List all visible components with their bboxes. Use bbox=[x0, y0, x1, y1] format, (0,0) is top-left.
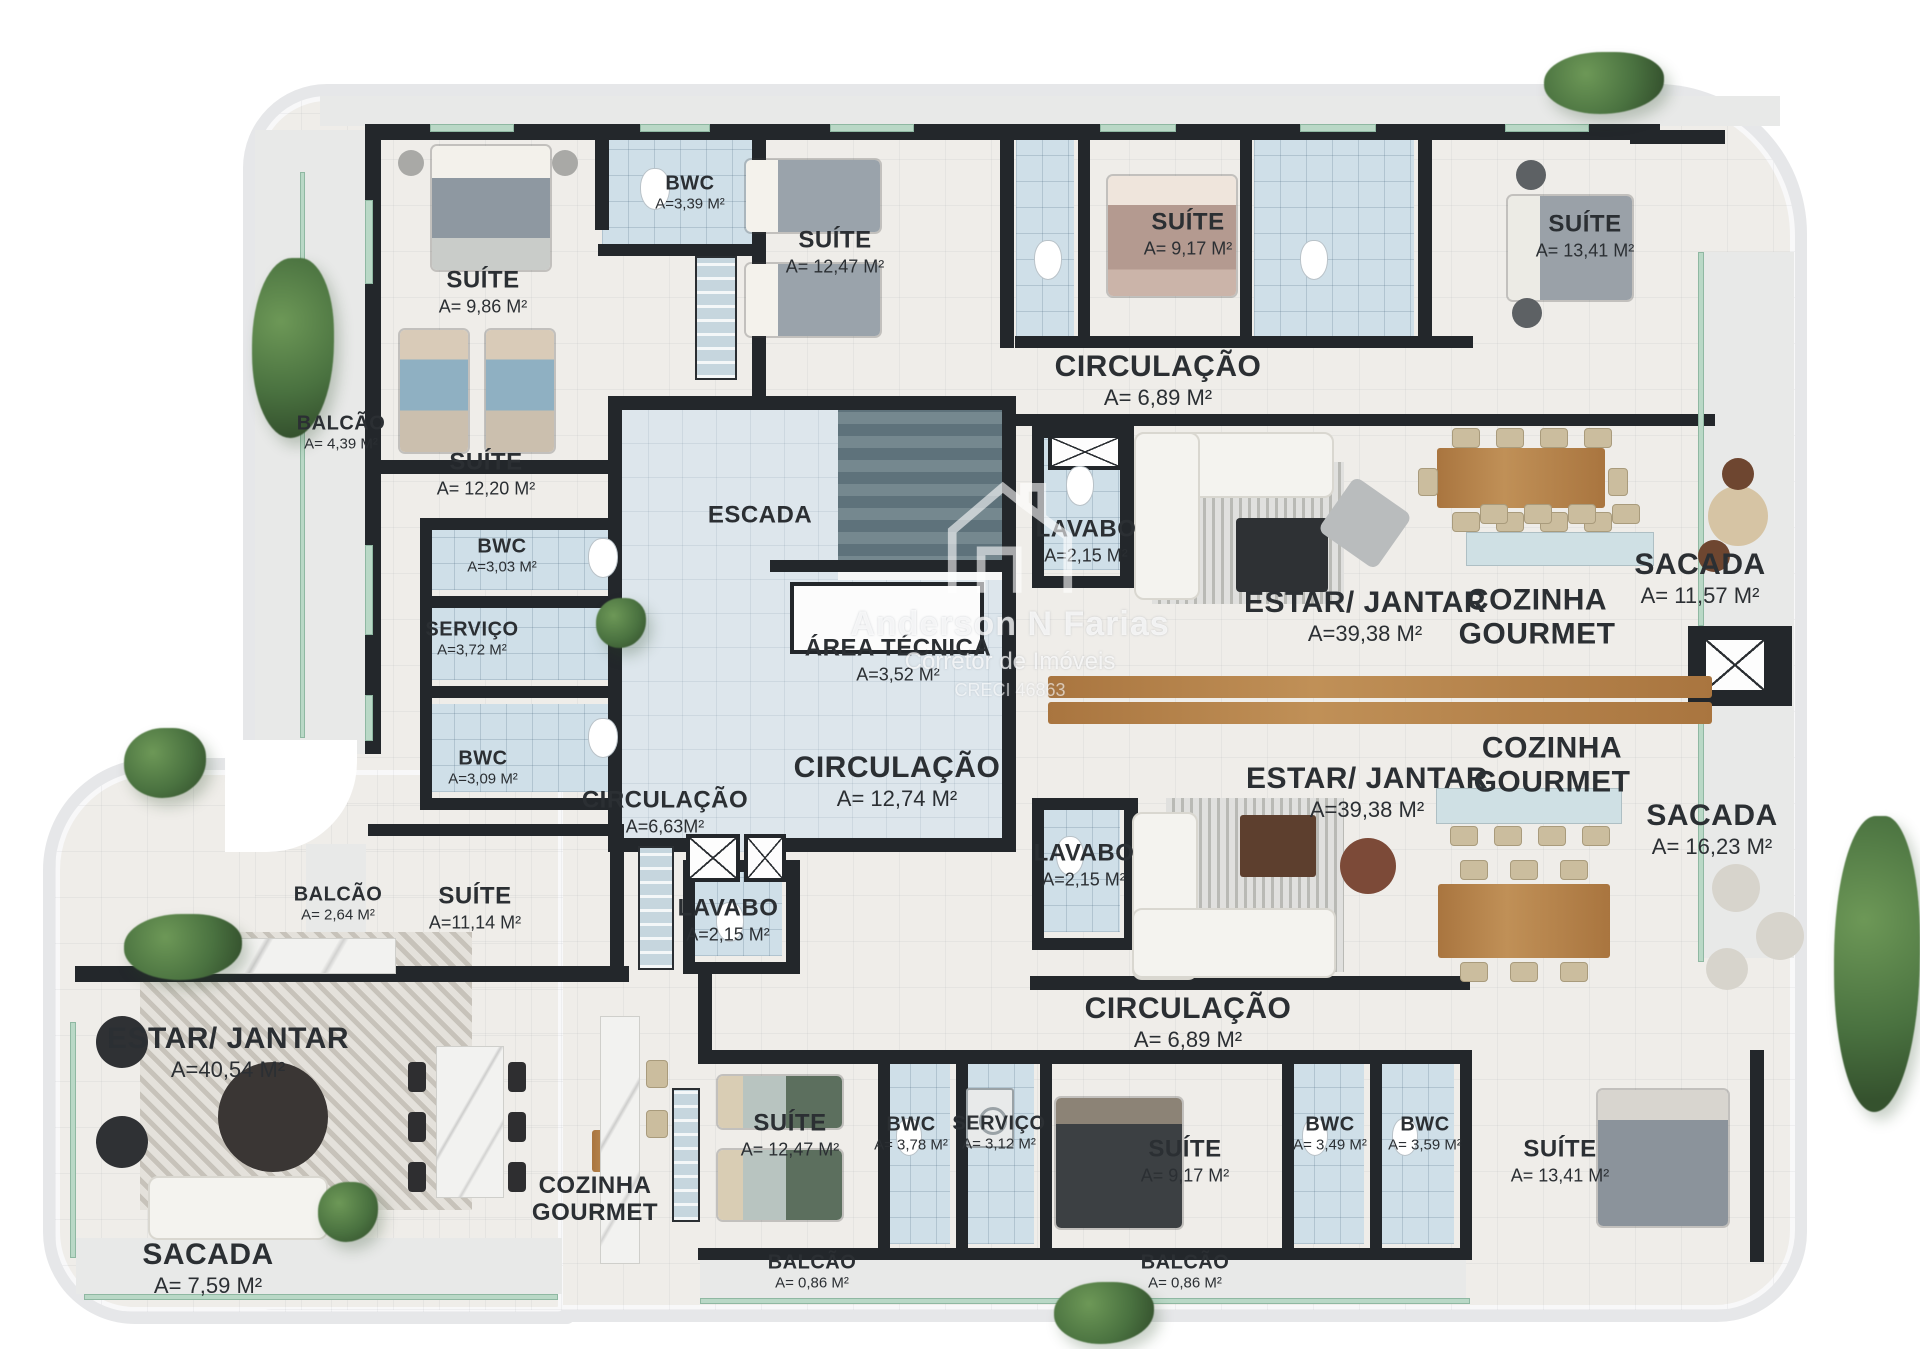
bed bbox=[1508, 196, 1632, 300]
pavement bbox=[255, 130, 369, 754]
chair bbox=[1560, 860, 1588, 880]
washing-machine-icon bbox=[966, 1088, 1014, 1148]
wall bbox=[1282, 1050, 1294, 1260]
chair bbox=[1612, 504, 1640, 524]
chair bbox=[1560, 962, 1588, 982]
round-furniture bbox=[96, 1116, 148, 1168]
stairs bbox=[838, 400, 1010, 572]
wall bbox=[1418, 124, 1432, 348]
wall bbox=[1032, 798, 1138, 810]
window-glass bbox=[365, 200, 373, 284]
wardrobe bbox=[695, 256, 737, 380]
wall bbox=[1750, 1050, 1764, 1262]
window-glass bbox=[84, 1294, 558, 1300]
bathroom-floor bbox=[1254, 138, 1414, 338]
chair bbox=[1608, 468, 1628, 496]
round-furniture bbox=[398, 150, 424, 176]
bed bbox=[486, 330, 554, 452]
chair bbox=[408, 1062, 426, 1092]
chair bbox=[1540, 428, 1568, 448]
marble-dining-table bbox=[436, 1046, 504, 1198]
wall bbox=[878, 1050, 890, 1260]
chair bbox=[646, 1060, 668, 1088]
wall bbox=[368, 824, 620, 836]
window-glass bbox=[365, 695, 373, 741]
window-glass bbox=[430, 124, 514, 132]
toilet-icon bbox=[896, 1118, 922, 1156]
bathroom-floor bbox=[1016, 138, 1074, 338]
wall bbox=[698, 962, 712, 1064]
chair bbox=[1510, 860, 1538, 880]
chair bbox=[508, 1112, 526, 1142]
kitchen-island bbox=[1436, 788, 1622, 824]
wall bbox=[595, 124, 609, 230]
chair bbox=[1480, 504, 1508, 524]
bed bbox=[400, 330, 468, 452]
bed bbox=[746, 160, 880, 232]
wall bbox=[698, 1050, 1470, 1064]
toilet-icon bbox=[588, 538, 618, 578]
wall bbox=[614, 396, 1014, 410]
bed bbox=[718, 1076, 842, 1128]
round-furniture bbox=[1340, 838, 1396, 894]
chair bbox=[1584, 428, 1612, 448]
bed bbox=[432, 146, 550, 270]
bed bbox=[718, 1150, 842, 1220]
bwc-309-floor bbox=[428, 704, 614, 792]
wall bbox=[786, 860, 800, 974]
bwc-349-floor bbox=[1288, 1058, 1364, 1244]
chair bbox=[1582, 826, 1610, 846]
wall bbox=[1460, 1050, 1472, 1260]
wall bbox=[1002, 396, 1016, 852]
chair bbox=[1418, 468, 1438, 496]
chair bbox=[1538, 826, 1566, 846]
toilet-icon bbox=[640, 168, 670, 210]
toilet-icon bbox=[1066, 466, 1094, 506]
servico-372-floor bbox=[428, 604, 614, 680]
dining-table bbox=[1438, 884, 1610, 958]
wall bbox=[1032, 576, 1134, 588]
wall bbox=[1015, 336, 1473, 348]
elevator-shaft-icon bbox=[686, 834, 740, 882]
wall bbox=[1630, 130, 1725, 144]
floor-plan-canvas: Anderson N Farias Corretor de Imóveis CR… bbox=[0, 0, 1920, 1349]
chair bbox=[1494, 826, 1522, 846]
toilet-icon bbox=[1300, 240, 1328, 280]
chair bbox=[646, 1110, 668, 1138]
chair bbox=[1460, 860, 1488, 880]
toilet-icon bbox=[1302, 1118, 1328, 1156]
side-table bbox=[1240, 815, 1316, 877]
round-furniture bbox=[218, 1062, 328, 1172]
bed bbox=[1598, 1090, 1728, 1226]
window-glass bbox=[830, 124, 914, 132]
chair bbox=[1496, 428, 1524, 448]
chair bbox=[1460, 962, 1488, 982]
wall bbox=[1032, 938, 1138, 950]
toilet-icon bbox=[1392, 1118, 1418, 1156]
round-furniture bbox=[1712, 864, 1760, 912]
elevator-shaft-icon bbox=[1048, 434, 1122, 470]
window-glass bbox=[1698, 704, 1704, 962]
chair bbox=[408, 1112, 426, 1142]
window-glass bbox=[1505, 124, 1589, 132]
wall bbox=[1030, 976, 1470, 990]
sofa bbox=[1134, 432, 1200, 600]
wall bbox=[420, 798, 614, 810]
plant bbox=[1054, 1282, 1154, 1344]
chair bbox=[1452, 428, 1480, 448]
wall bbox=[420, 686, 614, 698]
window-glass bbox=[1300, 124, 1376, 132]
round-furniture bbox=[1706, 948, 1748, 990]
kitchen-counter bbox=[1048, 702, 1712, 724]
sofa bbox=[1132, 908, 1336, 978]
wall bbox=[1120, 426, 1134, 588]
window-glass bbox=[640, 124, 710, 132]
bed bbox=[1108, 176, 1236, 296]
wall bbox=[368, 460, 614, 474]
wall bbox=[1078, 124, 1090, 348]
kitchen-island bbox=[1466, 532, 1654, 566]
chair bbox=[1524, 504, 1552, 524]
chair bbox=[408, 1162, 426, 1192]
wardrobe bbox=[672, 1088, 700, 1222]
chair bbox=[508, 1162, 526, 1192]
wall bbox=[420, 518, 614, 530]
bwc-339-floor bbox=[602, 138, 754, 254]
chair bbox=[1450, 826, 1478, 846]
sofa bbox=[148, 1176, 328, 1240]
chair bbox=[508, 1062, 526, 1092]
window-glass bbox=[365, 545, 373, 635]
elevator-shaft-icon bbox=[744, 834, 786, 882]
toilet-icon bbox=[716, 902, 744, 942]
plant bbox=[1834, 816, 1920, 1112]
window-glass bbox=[1698, 252, 1704, 626]
wall bbox=[1015, 414, 1715, 426]
round-furniture bbox=[1516, 160, 1546, 190]
wall bbox=[610, 824, 624, 978]
wall bbox=[770, 560, 1014, 572]
chair bbox=[1568, 504, 1596, 524]
wardrobe bbox=[638, 846, 674, 970]
chair bbox=[1452, 512, 1480, 532]
wall bbox=[420, 596, 614, 608]
kitchen-counter bbox=[1048, 676, 1712, 698]
window-glass bbox=[300, 172, 305, 738]
wall bbox=[698, 1248, 1470, 1260]
servico-312-floor bbox=[962, 1058, 1034, 1244]
toilet-icon bbox=[1034, 240, 1062, 280]
round-furniture bbox=[1512, 298, 1542, 328]
toilet-icon bbox=[588, 718, 618, 758]
wall bbox=[1240, 124, 1252, 348]
kitchen-island bbox=[600, 1016, 640, 1264]
wall bbox=[956, 1050, 968, 1260]
round-furniture bbox=[1698, 540, 1730, 572]
area-tecnica-shaft bbox=[790, 582, 984, 654]
bed bbox=[1056, 1098, 1182, 1228]
toilet-icon bbox=[1056, 836, 1084, 876]
wall bbox=[1040, 1050, 1052, 1260]
wall bbox=[1032, 426, 1044, 588]
wall bbox=[420, 518, 432, 810]
round-furniture bbox=[96, 1016, 148, 1068]
chair bbox=[1510, 962, 1538, 982]
dining-table bbox=[1437, 448, 1605, 508]
bwc-303-floor bbox=[428, 526, 614, 590]
pavement bbox=[76, 1238, 562, 1294]
wall bbox=[786, 838, 1016, 852]
round-furniture bbox=[1708, 486, 1768, 546]
wall bbox=[1000, 124, 1014, 348]
window-glass bbox=[70, 1022, 76, 1258]
window-glass bbox=[1100, 124, 1176, 132]
tv-console bbox=[1236, 518, 1328, 592]
wall bbox=[598, 244, 754, 256]
bed bbox=[746, 264, 880, 336]
pavement bbox=[1702, 252, 1794, 958]
round-furniture bbox=[1756, 912, 1804, 960]
round-furniture bbox=[1722, 458, 1754, 490]
round-furniture bbox=[552, 150, 578, 176]
wall bbox=[1032, 798, 1044, 950]
bwc-359-floor bbox=[1376, 1058, 1454, 1244]
wall bbox=[1370, 1050, 1382, 1260]
